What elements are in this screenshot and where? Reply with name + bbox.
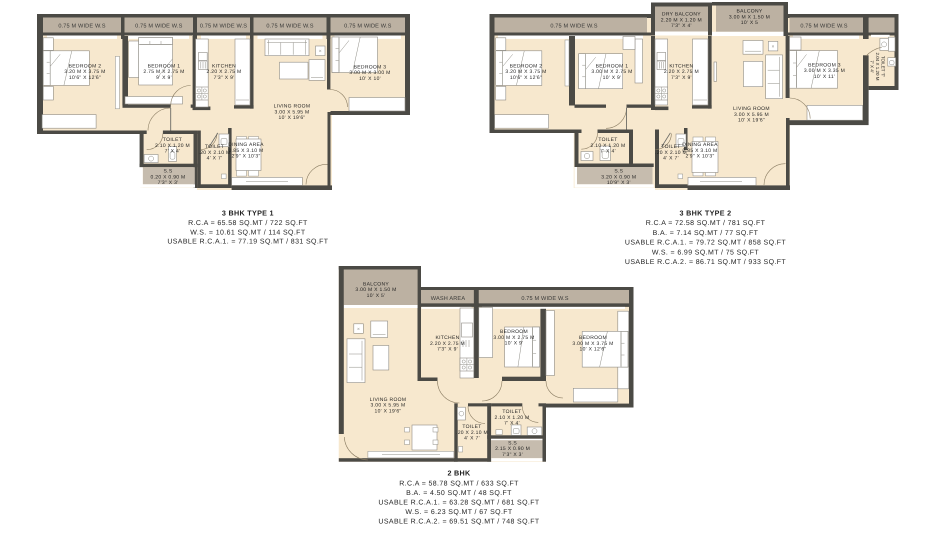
svg-text:0.75 M WIDE W.S: 0.75 M WIDE W.S [135, 23, 182, 29]
svg-text:10' X 5: 10' X 5 [741, 20, 759, 26]
svg-text:TOILET 'T': TOILET 'T' [881, 56, 886, 77]
svg-text:2'9" X 10'3": 2'9" X 10'3" [231, 154, 260, 160]
svg-text:10' X 19'6": 10' X 19'6" [738, 118, 765, 124]
svg-text:2 BHK: 2 BHK [447, 469, 471, 478]
svg-text:2.04 X 1.20 M: 2.04 X 1.20 M [875, 52, 880, 80]
svg-text:R.C.A = 65.58 SQ.MT / 722 SQ.F: R.C.A = 65.58 SQ.MT / 722 SQ.FT [188, 219, 308, 227]
svg-text:10'6" X 12'6": 10'6" X 12'6" [69, 75, 101, 81]
svg-text:0.75 M WIDE W.S: 0.75 M WIDE W.S [344, 23, 391, 29]
svg-text:×: × [772, 44, 775, 50]
svg-text:7'3" X 3': 7'3" X 3' [502, 452, 523, 458]
svg-text:0.75 M WIDE W.S: 0.75 M WIDE W.S [800, 23, 847, 29]
svg-text:WASH AREA: WASH AREA [431, 296, 466, 302]
svg-text:7' X 4': 7' X 4' [165, 149, 181, 155]
svg-text:0.75 M WIDE W.S: 0.75 M WIDE W.S [58, 23, 105, 29]
svg-text:0.75 M WIDE W.S: 0.75 M WIDE W.S [550, 23, 597, 29]
svg-text:USABLE R.C.A.1. = 63.28 SQ.MT: USABLE R.C.A.1. = 63.28 SQ.MT / 681 SQ.F… [378, 498, 539, 506]
svg-text:10' X 19'6": 10' X 19'6" [278, 115, 305, 121]
svg-text:2'9" X 10'3": 2'9" X 10'3" [685, 154, 714, 160]
svg-text:USABLE R.C.A.1. = 77.19 SQ.MT: USABLE R.C.A.1. = 77.19 SQ.MT / 831 SQ.F… [167, 238, 328, 246]
svg-text:W.S. = 10.61 SQ.MT / 114 SQ.FT: W.S. = 10.61 SQ.MT / 114 SQ.FT [190, 228, 306, 236]
svg-text:0.75 M WIDE W.S: 0.75 M WIDE W.S [266, 23, 313, 29]
svg-text:4' X 7': 4' X 7' [207, 156, 223, 162]
svg-text:10'6" X 12'6": 10'6" X 12'6" [510, 75, 542, 81]
svg-text:10' X 9': 10' X 9' [603, 75, 622, 81]
svg-text:7'3" X 4': 7'3" X 4' [671, 23, 692, 29]
svg-text:4' X 7': 4' X 7' [663, 156, 679, 162]
svg-text:7'3" X 3': 7'3" X 3' [158, 180, 179, 186]
svg-text:7'3" X 9': 7'3" X 9' [214, 75, 235, 81]
svg-text:10' X 5': 10' X 5' [367, 293, 386, 299]
svg-text:9' X 9': 9' X 9' [156, 75, 172, 81]
svg-text:10'9" X 3': 10'9" X 3' [607, 180, 631, 186]
svg-text:0.75 M WIDE W.S: 0.75 M WIDE W.S [200, 23, 247, 29]
svg-text:W.S. = 6.99 SQ.MT / 75 SQ.FT: W.S. = 6.99 SQ.MT / 75 SQ.FT [652, 248, 760, 256]
svg-text:×: × [319, 49, 322, 55]
svg-text:0.75 M WIDE W.S: 0.75 M WIDE W.S [521, 296, 568, 302]
svg-text:10' X 19'6": 10' X 19'6" [374, 408, 401, 414]
svg-text:7' X 4': 7' X 4' [600, 149, 616, 155]
svg-text:7'3" X 9': 7'3" X 9' [437, 347, 458, 353]
svg-text:USABLE R.C.A.2. = 86.71 SQ.MT: USABLE R.C.A.2. = 86.71 SQ.MT / 933 SQ.F… [625, 258, 786, 266]
svg-text:3 BHK TYPE 2: 3 BHK TYPE 2 [680, 209, 732, 218]
svg-text:3 BHK TYPE 1: 3 BHK TYPE 1 [222, 209, 274, 218]
svg-text:W.S. = 6.23 SQ.MT / 67 SQ.FT: W.S. = 6.23 SQ.MT / 67 SQ.FT [405, 508, 513, 516]
svg-text:USABLE R.C.A.2. = 69.51 SQ.MT: USABLE R.C.A.2. = 69.51 SQ.MT / 748 SQ.F… [378, 518, 539, 526]
svg-text:USABLE R.C.A.1. = 79.72 SQ.MT: USABLE R.C.A.1. = 79.72 SQ.MT / 858 SQ.F… [625, 239, 786, 247]
svg-text:B.A. = 4.50 SQ.MT / 48 SQ.FT: B.A. = 4.50 SQ.MT / 48 SQ.FT [406, 489, 512, 497]
svg-text:7'3" X 9': 7'3" X 9' [671, 75, 692, 81]
svg-text:10' X 10': 10' X 10' [359, 76, 381, 82]
svg-text:7' X 4': 7' X 4' [869, 60, 874, 72]
svg-text:7' X 4': 7' X 4' [504, 421, 520, 427]
svg-text:B.A. = 7.14 SQ.MT / 77 SQ.FT: B.A. = 7.14 SQ.MT / 77 SQ.FT [653, 229, 759, 237]
svg-text:×: × [357, 326, 360, 332]
svg-text:4' X 7': 4' X 7' [464, 436, 480, 442]
svg-text:10' X 9': 10' X 9' [505, 341, 524, 347]
svg-text:R.C.A = 58.78 SQ.MT / 633 SQ.F: R.C.A = 58.78 SQ.MT / 633 SQ.FT [399, 479, 519, 487]
svg-text:10' X 11': 10' X 11' [814, 74, 835, 80]
svg-text:10' X 12'6": 10' X 12'6" [579, 347, 606, 353]
svg-text:R.C.A = 72.58 SQ.MT / 781 SQ.F: R.C.A = 72.58 SQ.MT / 781 SQ.FT [646, 219, 766, 227]
